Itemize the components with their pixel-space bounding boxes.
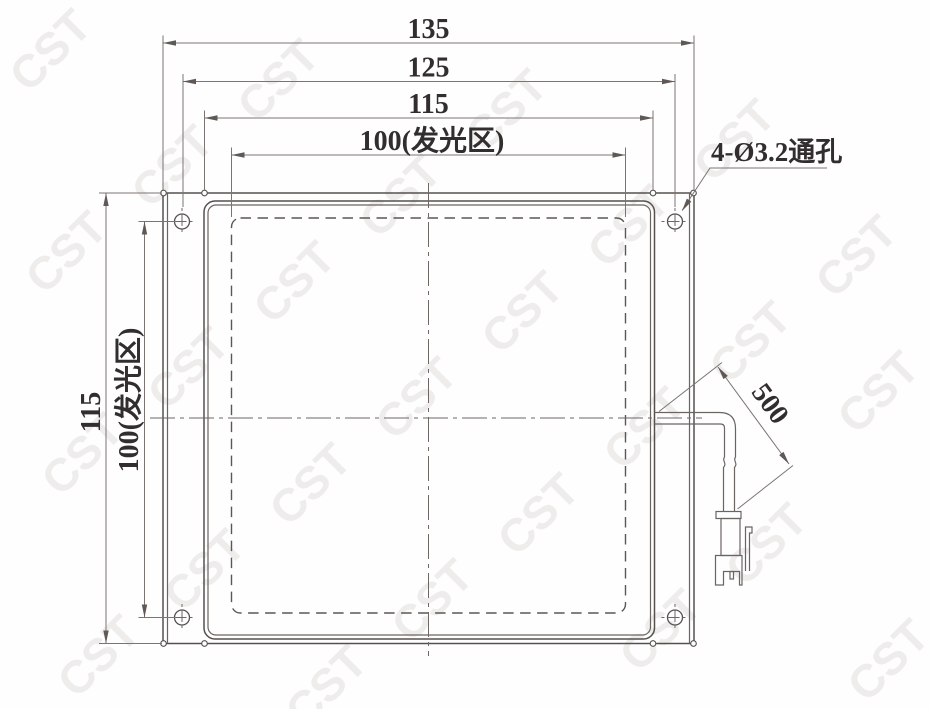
dim-label-135: 135 xyxy=(408,14,450,45)
watermark-text: CST xyxy=(609,579,711,681)
watermark-text: CST xyxy=(275,635,377,709)
watermark-text: CST xyxy=(471,261,573,363)
watermark-text: CST xyxy=(15,201,117,303)
watermark-text: CST xyxy=(805,205,907,307)
watermark-text: CST xyxy=(365,347,467,449)
watermark-text: CST xyxy=(259,433,361,535)
watermark-text: CST xyxy=(715,493,817,595)
dim-label-100-light-area: 100(发光区) xyxy=(360,124,505,157)
watermark-text: CST xyxy=(137,317,239,419)
watermark-text: CST xyxy=(699,291,801,393)
corner-dot xyxy=(650,641,656,647)
watermark-text: CST xyxy=(381,549,483,651)
watermark-text: CST xyxy=(0,0,101,101)
technical-drawing: CSTCSTCSTCSTCSTCSTCSTCSTCSTCSTCSTCSTCSTC… xyxy=(0,0,930,709)
watermark-text: CST xyxy=(243,231,345,333)
dim-label-125: 125 xyxy=(408,53,450,84)
watermark-text: CST xyxy=(837,609,930,709)
connector-lip xyxy=(716,512,741,519)
hole-callout-label: 4-Ø3.2通孔 xyxy=(711,137,842,167)
corner-dot xyxy=(202,190,208,196)
watermark-text: CST xyxy=(47,605,149,707)
dim-label-115-vertical: 115 xyxy=(76,392,107,432)
watermark-text: CST xyxy=(121,115,223,217)
corner-dot xyxy=(202,641,208,647)
technical-drawing-page: CSTCSTCSTCSTCSTCSTCSTCSTCSTCSTCSTCSTCSTC… xyxy=(0,0,930,709)
watermark-text: CST xyxy=(577,175,679,277)
dim-label-115: 115 xyxy=(408,89,448,120)
watermark-text: CST xyxy=(487,463,589,565)
watermark-text: CST xyxy=(827,341,929,443)
watermark-text: CST xyxy=(593,377,695,479)
corner-dot xyxy=(650,190,656,196)
dim-label-100-vertical-light-area: 100(发光区) xyxy=(112,328,145,473)
watermark-text: CST xyxy=(227,29,329,131)
watermark-text: CST xyxy=(349,145,451,247)
corner-dot xyxy=(691,641,697,647)
dim-label-500-cable: 500 xyxy=(745,378,795,430)
